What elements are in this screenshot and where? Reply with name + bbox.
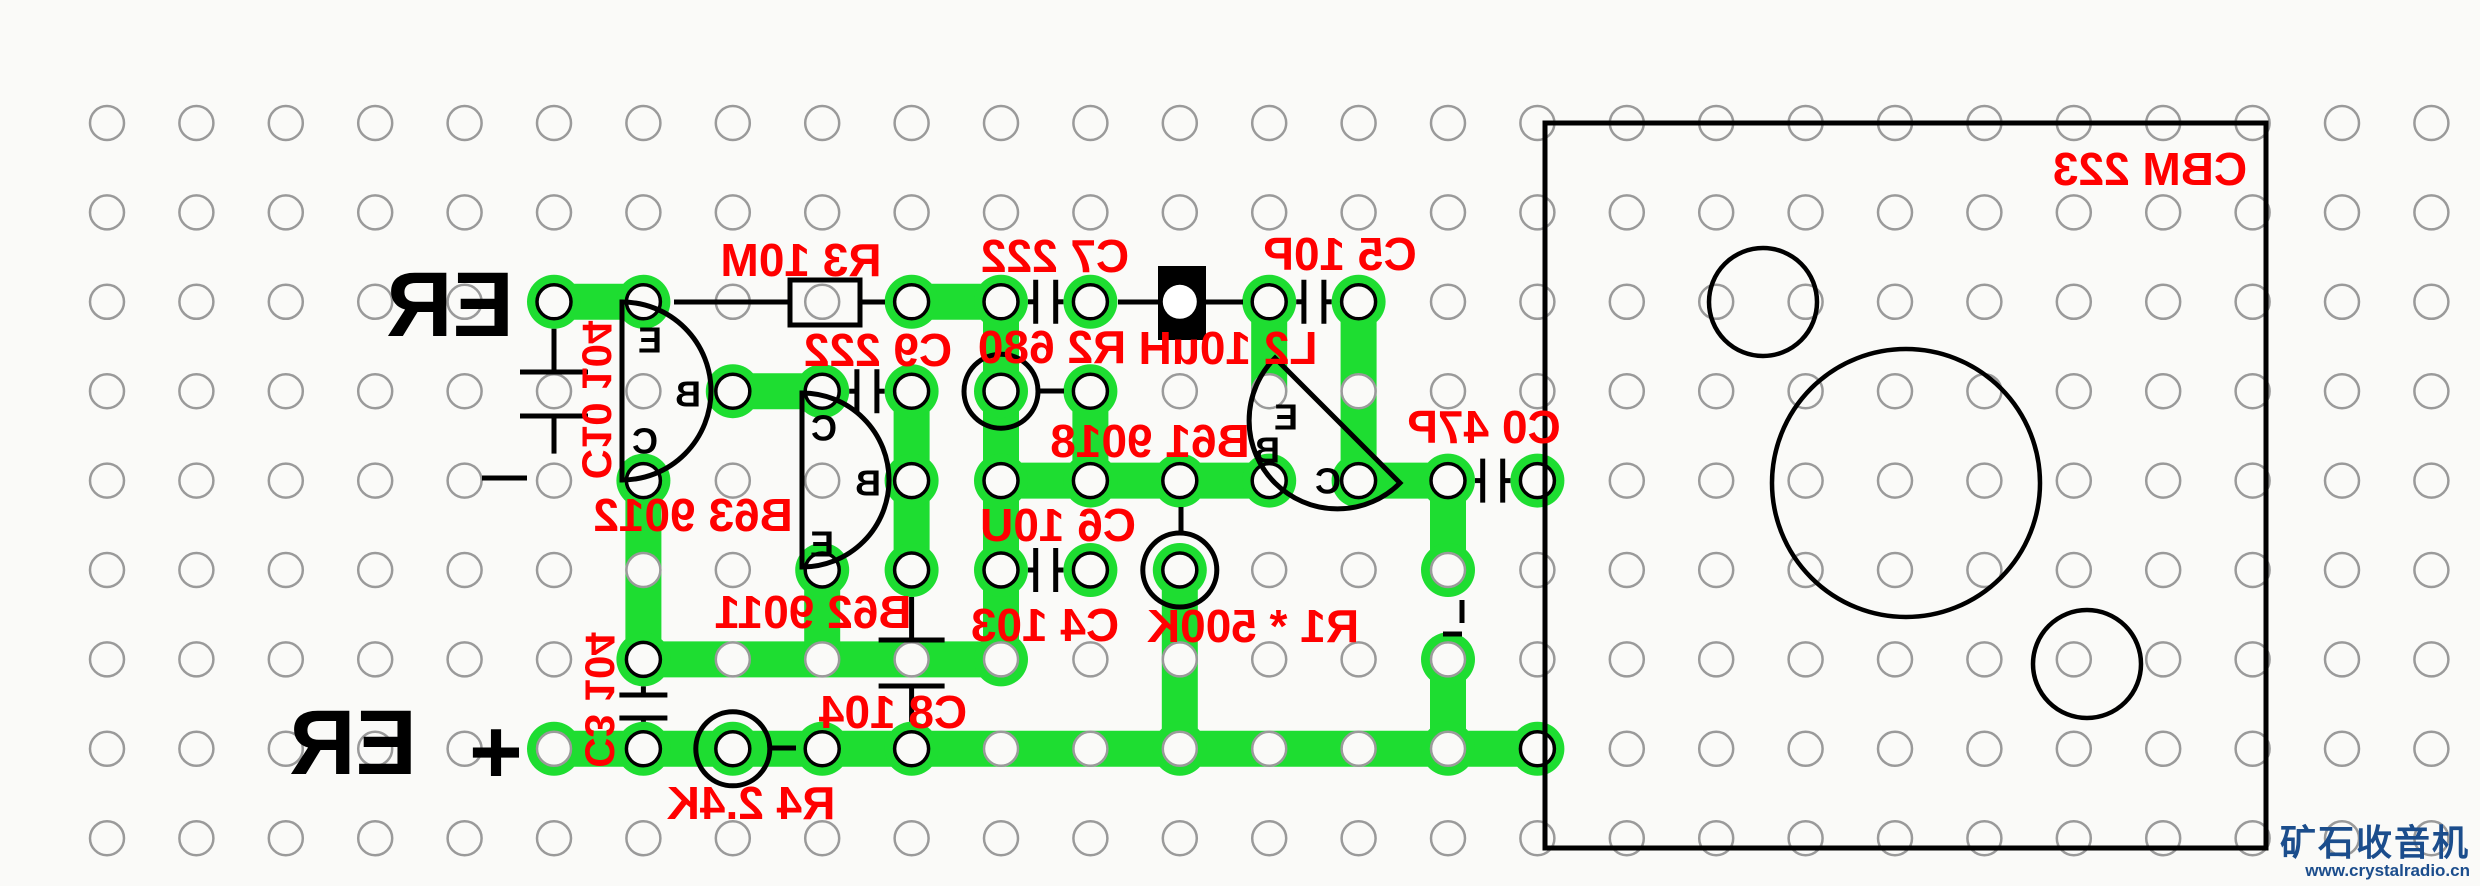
perfboard-hole xyxy=(358,106,392,140)
perfboard-hole xyxy=(179,553,213,587)
perfboard-hole xyxy=(179,195,213,229)
pad-hole xyxy=(1163,464,1197,498)
perfboard-hole xyxy=(2057,195,2091,229)
pcb-layout-stage: EBCCBEEBCR3 10MC9 222C7 222R2 680L2 10uH… xyxy=(0,0,2480,886)
perfboard-hole xyxy=(805,106,839,140)
transistor-pin-label: C xyxy=(1315,461,1341,502)
perfboard-hole xyxy=(1163,106,1197,140)
pad-hole xyxy=(537,732,571,766)
perfboard-hole xyxy=(179,374,213,408)
perfboard-hole xyxy=(984,821,1018,855)
perfboard-hole xyxy=(1520,195,1554,229)
perfboard-hole xyxy=(1699,553,1733,587)
perfboard-hole xyxy=(1520,285,1554,319)
perfboard-hole xyxy=(1610,732,1644,766)
pcb-layout-svg: EBCCBEEBCR3 10MC9 222C7 222R2 680L2 10uH… xyxy=(0,0,2480,886)
pad-hole xyxy=(1073,285,1107,319)
inductor-hole xyxy=(1163,285,1197,319)
perfboard-hole xyxy=(2414,732,2448,766)
perfboard-hole xyxy=(90,195,124,229)
perfboard-hole xyxy=(537,642,571,676)
perfboard-hole xyxy=(626,195,660,229)
perfboard-hole xyxy=(358,553,392,587)
perfboard-hole xyxy=(895,821,929,855)
pad-hole xyxy=(1431,553,1465,587)
perfboard-hole xyxy=(1699,642,1733,676)
perfboard-hole xyxy=(2057,464,2091,498)
perfboard-hole xyxy=(90,106,124,140)
perfboard-hole xyxy=(1163,821,1197,855)
pad-hole xyxy=(895,553,929,587)
label-c6: C6 10U xyxy=(980,499,1136,551)
transistor-pin-label: C xyxy=(811,408,837,449)
label-b63: B63 9012 xyxy=(593,489,793,541)
perfboard-hole xyxy=(2146,553,2180,587)
perfboard-hole xyxy=(1610,285,1644,319)
perfboard-hole xyxy=(895,642,929,676)
perfboard-hole xyxy=(1342,374,1376,408)
perfboard-hole xyxy=(1342,553,1376,587)
watermark-site-url: www.crystalradio.cn xyxy=(2280,862,2470,880)
pad-hole xyxy=(984,374,1018,408)
label-r4: R4 2.4K xyxy=(667,777,836,829)
perfboard-hole xyxy=(90,642,124,676)
perfboard-hole xyxy=(1699,374,1733,408)
perfboard-hole xyxy=(1789,642,1823,676)
perfboard-hole xyxy=(358,642,392,676)
perfboard-hole xyxy=(448,642,482,676)
perfboard-hole xyxy=(537,553,571,587)
perfboard-hole xyxy=(1610,374,1644,408)
perfboard-hole xyxy=(1163,195,1197,229)
transistor-pin-label: B xyxy=(675,374,701,415)
transistor-pin-label: E xyxy=(810,524,834,565)
perfboard-hole xyxy=(2325,732,2359,766)
perfboard-hole xyxy=(1789,195,1823,229)
label-b61: B61 9018 xyxy=(1050,415,1250,467)
perfboard-hole xyxy=(2325,195,2359,229)
pad-hole xyxy=(1520,732,1554,766)
perfboard-hole xyxy=(2414,285,2448,319)
pad-hole xyxy=(1163,553,1197,587)
label-cbm: CBM 223 xyxy=(2053,143,2247,195)
perfboard-hole xyxy=(1878,464,1912,498)
pad-hole xyxy=(984,553,1018,587)
perfboard-hole xyxy=(1431,106,1465,140)
perfboard-hole xyxy=(1878,553,1912,587)
perfboard-hole xyxy=(1967,464,2001,498)
perfboard-hole xyxy=(2325,553,2359,587)
perfboard-hole xyxy=(269,374,303,408)
pad-hole xyxy=(1342,285,1376,319)
watermark: 矿石收音机 www.crystalradio.cn xyxy=(2280,824,2470,880)
perfboard-hole xyxy=(2146,374,2180,408)
perfboard-hole xyxy=(2057,732,2091,766)
perfboard-hole xyxy=(895,195,929,229)
perfboard-hole xyxy=(179,732,213,766)
pad-hole xyxy=(895,285,929,319)
perfboard-hole xyxy=(1878,195,1912,229)
pad-hole xyxy=(895,464,929,498)
perfboard-hole xyxy=(1967,642,2001,676)
pad-hole xyxy=(1073,553,1107,587)
label-r1: R1 * 500K xyxy=(1147,600,1359,652)
perfboard-hole xyxy=(448,553,482,587)
perfboard-hole xyxy=(1252,732,1286,766)
perfboard-hole xyxy=(2146,642,2180,676)
perfboard-hole xyxy=(448,464,482,498)
transistor-pin-label: E xyxy=(638,320,662,361)
perfboard-hole xyxy=(2057,285,2091,319)
perfboard-hole xyxy=(1699,464,1733,498)
perfboard-hole xyxy=(2414,464,2448,498)
label-c3: C3 104 xyxy=(577,632,624,768)
pad-hole xyxy=(626,732,660,766)
pad-hole xyxy=(1342,464,1376,498)
perfboard-hole xyxy=(90,553,124,587)
perfboard-hole xyxy=(269,642,303,676)
label-c9: C9 222 xyxy=(804,324,952,376)
transistor-pin-label: C xyxy=(632,421,658,462)
perfboard-hole xyxy=(1878,285,1912,319)
perfboard-hole xyxy=(269,106,303,140)
perfboard-hole xyxy=(1789,464,1823,498)
pad-hole xyxy=(1431,732,1465,766)
pad-hole xyxy=(1252,285,1286,319)
pad-hole xyxy=(1073,464,1107,498)
perfboard-hole xyxy=(805,195,839,229)
perfboard-hole xyxy=(2146,195,2180,229)
perfboard-hole xyxy=(2414,195,2448,229)
perfboard-hole xyxy=(448,106,482,140)
perfboard-hole xyxy=(1073,195,1107,229)
perfboard-hole xyxy=(1610,553,1644,587)
perfboard-hole xyxy=(1967,195,2001,229)
transistor-pin-label: B xyxy=(1254,430,1280,471)
perfboard-hole xyxy=(1878,642,1912,676)
perfboard-hole xyxy=(537,374,571,408)
perfboard-hole xyxy=(1431,285,1465,319)
label-b62: B62 9011 xyxy=(715,586,912,638)
perfboard-hole xyxy=(537,821,571,855)
perfboard-hole xyxy=(1699,285,1733,319)
perfboard-hole xyxy=(2057,642,2091,676)
perfboard-hole xyxy=(90,821,124,855)
label-r3: R3 10M xyxy=(720,234,881,286)
perfboard-hole xyxy=(269,553,303,587)
perfboard-hole xyxy=(1431,821,1465,855)
perfboard-hole xyxy=(805,285,839,319)
perfboard-hole xyxy=(1431,195,1465,229)
perfboard-hole xyxy=(716,106,750,140)
pad-hole xyxy=(984,285,1018,319)
perfboard-hole xyxy=(1073,106,1107,140)
perfboard-hole xyxy=(984,732,1018,766)
pad-hole xyxy=(1520,464,1554,498)
perfboard-hole xyxy=(626,821,660,855)
label-c4: C4 103 xyxy=(971,599,1119,651)
perfboard-hole xyxy=(626,553,660,587)
perfboard-hole xyxy=(2414,374,2448,408)
label-er-top: ER xyxy=(386,254,514,356)
perfboard-hole xyxy=(1252,195,1286,229)
pad-hole xyxy=(1431,642,1465,676)
perfboard-hole xyxy=(90,285,124,319)
perfboard-hole xyxy=(269,285,303,319)
pad-hole xyxy=(716,732,750,766)
label-l2: L2 10uH xyxy=(1139,322,1318,374)
perfboard-hole xyxy=(90,374,124,408)
label-plus: + xyxy=(469,701,523,803)
perfboard-hole xyxy=(1699,195,1733,229)
perfboard-hole xyxy=(1967,374,2001,408)
label-er-bottom: ER xyxy=(289,692,417,794)
perfboard-hole xyxy=(2057,553,2091,587)
pad-hole xyxy=(1431,464,1465,498)
perfboard-hole xyxy=(90,732,124,766)
perfboard-hole xyxy=(1342,106,1376,140)
perfboard-hole xyxy=(805,642,839,676)
label-c10: C10 104 xyxy=(574,320,621,479)
label-c7: C7 222 xyxy=(981,230,1129,282)
perfboard-hole xyxy=(269,195,303,229)
perfboard-hole xyxy=(2414,642,2448,676)
perfboard-hole xyxy=(1252,106,1286,140)
perfboard-hole xyxy=(179,642,213,676)
perfboard-hole xyxy=(805,464,839,498)
perfboard-hole xyxy=(448,374,482,408)
perfboard-hole xyxy=(2325,642,2359,676)
label-c8: C8 104 xyxy=(818,686,967,738)
perfboard-hole xyxy=(1252,821,1286,855)
perfboard-hole xyxy=(358,821,392,855)
perfboard-hole xyxy=(2057,374,2091,408)
perfboard-hole xyxy=(90,464,124,498)
perfboard-hole xyxy=(537,106,571,140)
perfboard-hole xyxy=(358,464,392,498)
perfboard-hole xyxy=(1342,821,1376,855)
perfboard-hole xyxy=(2146,285,2180,319)
perfboard-hole xyxy=(1252,553,1286,587)
perfboard-hole xyxy=(626,374,660,408)
perfboard-hole xyxy=(448,195,482,229)
perfboard-hole xyxy=(716,195,750,229)
perfboard-hole xyxy=(358,374,392,408)
pad-hole xyxy=(895,374,929,408)
label-c5: C5 10P xyxy=(1263,228,1416,280)
pad-hole xyxy=(537,285,571,319)
perfboard-hole xyxy=(179,821,213,855)
perfboard-hole xyxy=(716,553,750,587)
pad-hole xyxy=(1163,732,1197,766)
perfboard-hole xyxy=(984,195,1018,229)
perfboard-hole xyxy=(1073,821,1107,855)
label-r2: R2 680 xyxy=(978,321,1126,373)
perfboard-hole xyxy=(1520,642,1554,676)
perfboard-hole xyxy=(1520,553,1554,587)
perfboard-hole xyxy=(2325,464,2359,498)
perfboard-hole xyxy=(179,285,213,319)
perfboard-hole xyxy=(1342,195,1376,229)
perfboard-hole xyxy=(448,821,482,855)
perfboard-hole xyxy=(626,106,660,140)
perfboard-hole xyxy=(537,464,571,498)
pad-hole xyxy=(716,374,750,408)
perfboard-hole xyxy=(2146,732,2180,766)
pad-hole xyxy=(1073,374,1107,408)
perfboard-hole xyxy=(179,106,213,140)
perfboard-hole xyxy=(895,106,929,140)
label-c0: C0 47P xyxy=(1407,401,1560,453)
perfboard-hole xyxy=(2414,553,2448,587)
transistor-pin-label: B xyxy=(855,463,881,504)
perfboard-hole xyxy=(1073,732,1107,766)
perfboard-hole xyxy=(1967,732,2001,766)
perfboard-hole xyxy=(1878,374,1912,408)
perfboard-hole xyxy=(1878,732,1912,766)
perfboard-hole xyxy=(269,464,303,498)
perfboard-hole xyxy=(2325,106,2359,140)
perfboard-hole xyxy=(2414,106,2448,140)
perfboard-hole xyxy=(1342,732,1376,766)
perfboard-hole xyxy=(984,106,1018,140)
perfboard-hole xyxy=(2325,285,2359,319)
perfboard-hole xyxy=(1699,732,1733,766)
perfboard-hole xyxy=(269,821,303,855)
perfboard-hole xyxy=(2146,464,2180,498)
perfboard-hole xyxy=(1610,642,1644,676)
perfboard-hole xyxy=(2325,374,2359,408)
perfboard-hole xyxy=(537,195,571,229)
perfboard-hole xyxy=(179,464,213,498)
perfboard-hole xyxy=(1163,374,1197,408)
perfboard-hole xyxy=(358,195,392,229)
perfboard-hole xyxy=(716,642,750,676)
perfboard-hole xyxy=(1789,732,1823,766)
perfboard-hole xyxy=(1967,285,2001,319)
pad-hole xyxy=(984,464,1018,498)
pad-hole xyxy=(626,642,660,676)
perfboard-hole xyxy=(1610,195,1644,229)
watermark-site-name: 矿石收音机 xyxy=(2280,824,2470,862)
perfboard-hole xyxy=(1610,464,1644,498)
